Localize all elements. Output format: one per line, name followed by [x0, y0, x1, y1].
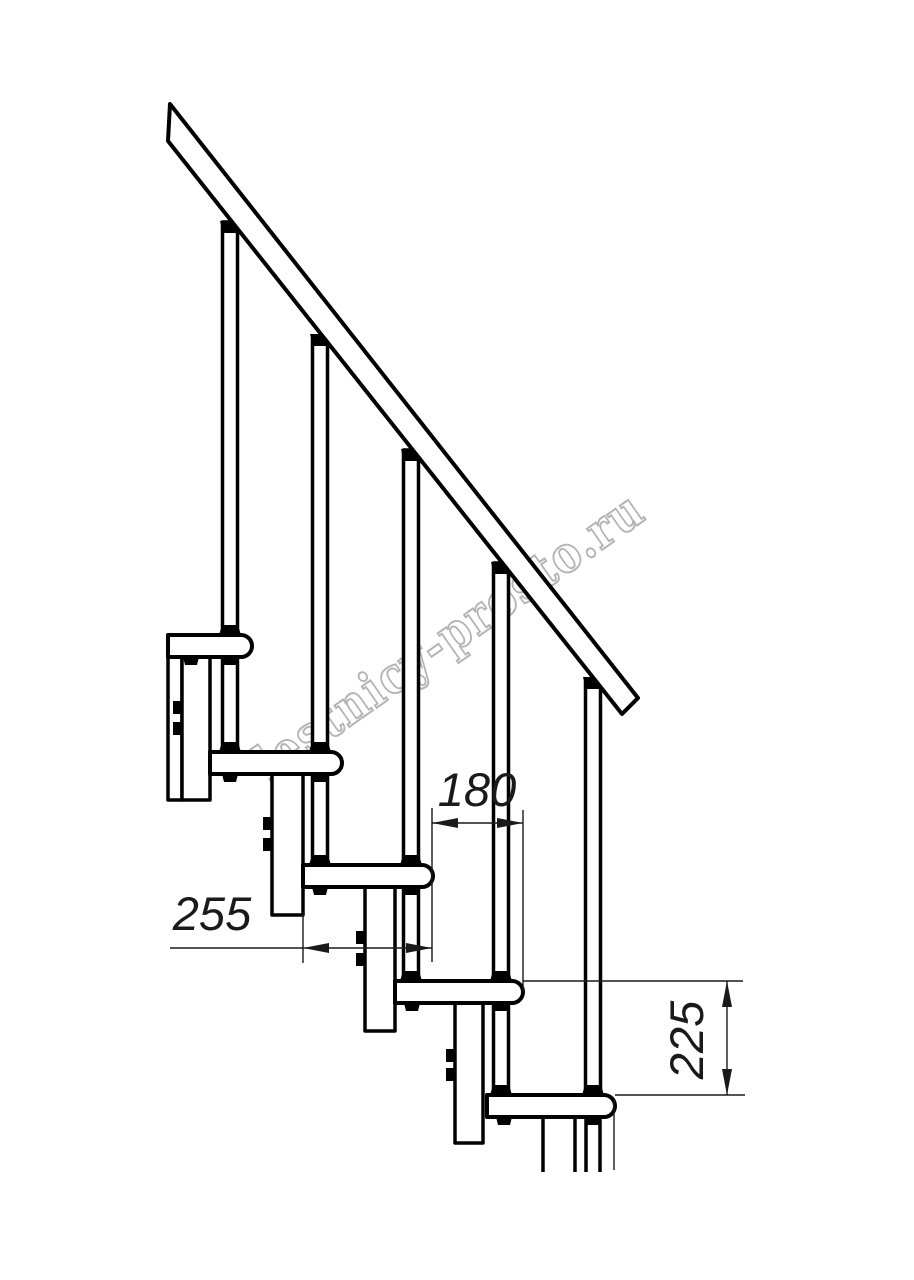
- bolt-head-icon: [356, 931, 365, 944]
- dimension-225: 225: [523, 981, 745, 1095]
- baluster-base-collar: [219, 625, 241, 635]
- bolt-head-icon: [173, 722, 182, 735]
- under-tread-nut: [312, 887, 328, 895]
- bolt-head-icon: [263, 838, 272, 851]
- baluster-base-collar: [490, 971, 512, 981]
- bolt-base-collar: [219, 742, 241, 752]
- support-column-4: [455, 991, 483, 1143]
- dimension-255-label: 255: [172, 887, 252, 940]
- under-tread-nut: [403, 887, 419, 895]
- wall-plate: [168, 636, 182, 800]
- bolt-base-collar: [309, 855, 331, 865]
- tread-5: [487, 1095, 615, 1117]
- baluster-3: [404, 450, 419, 869]
- baluster-1: [223, 222, 238, 642]
- support-column-1: [182, 646, 210, 800]
- tread-bolt-1: [223, 650, 238, 756]
- baluster-2: [313, 336, 328, 756]
- arrowhead-down-icon: [722, 1069, 732, 1095]
- baluster-base-collar: [309, 742, 331, 752]
- baluster-base-collar: [582, 1085, 604, 1095]
- tread-2: [210, 752, 342, 774]
- support-column-3: [365, 875, 395, 1031]
- under-tread-nut: [222, 774, 238, 782]
- bolt-head-icon: [263, 817, 272, 830]
- bolt-head-icon: [446, 1068, 455, 1081]
- arrowhead-left-icon: [303, 943, 329, 953]
- under-tread-nut: [404, 1003, 420, 1011]
- tread-3: [303, 865, 433, 887]
- bolt-base-collar: [490, 1085, 512, 1095]
- tread-1: [168, 635, 252, 657]
- arrowhead-up-icon: [722, 981, 732, 1007]
- bolt-head-icon: [356, 953, 365, 966]
- tread-4: [395, 981, 523, 1003]
- baluster-base-collar: [400, 855, 422, 865]
- baluster-5: [586, 679, 601, 1099]
- under-tread-nut: [585, 1117, 601, 1125]
- under-tread-nut: [312, 774, 328, 782]
- drawing-canvas: lestnicy-prosto.ru: [0, 0, 914, 1280]
- under-tread-nut: [183, 657, 199, 665]
- dimension-180-label: 180: [438, 763, 516, 816]
- under-tread-nut: [496, 1117, 512, 1125]
- dimension-225-label: 225: [660, 1000, 713, 1080]
- tread-bolt-3: [404, 879, 419, 986]
- arrowhead-left-icon: [432, 818, 458, 828]
- under-tread-nut: [493, 1003, 509, 1011]
- bolt-base-collar: [400, 971, 422, 981]
- staircase-technical-drawing: lestnicy-prosto.ru: [0, 0, 914, 1280]
- under-tread-nut: [222, 657, 238, 665]
- bolt-head-icon: [446, 1049, 455, 1062]
- support-column-2: [272, 762, 303, 915]
- bolt-head-icon: [173, 701, 182, 714]
